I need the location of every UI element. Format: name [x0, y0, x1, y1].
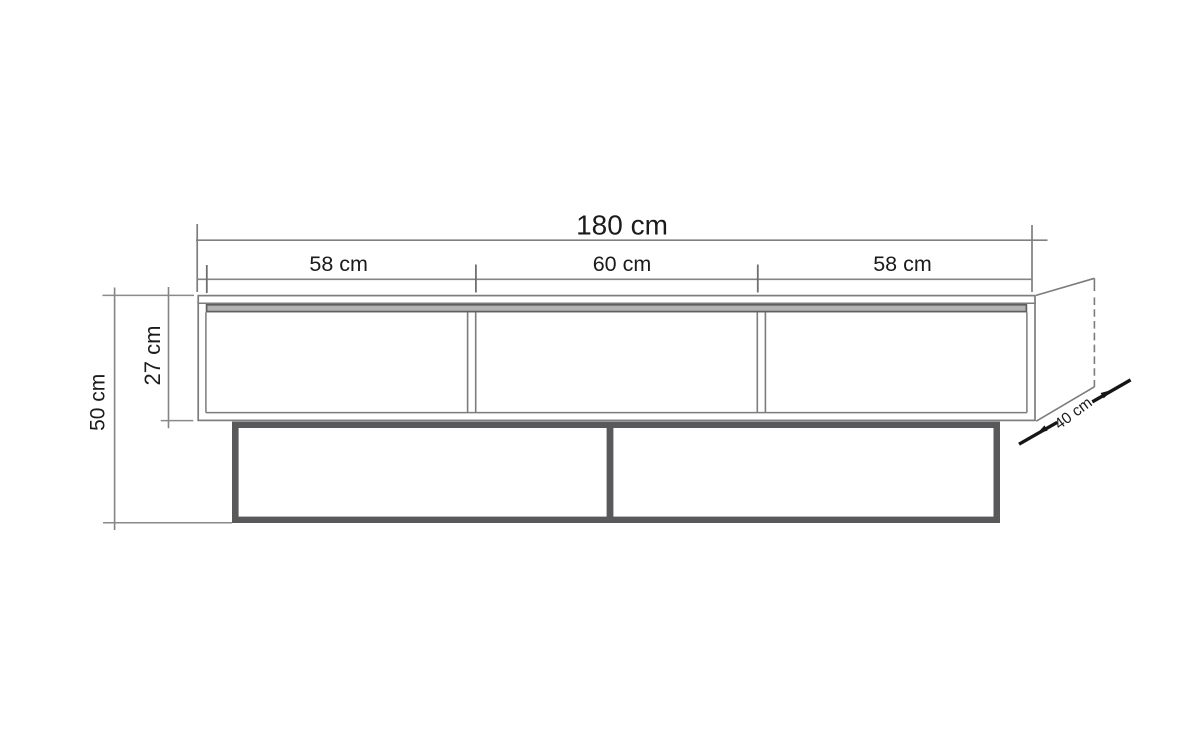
- svg-text:180 cm: 180 cm: [576, 209, 668, 240]
- svg-text:60 cm: 60 cm: [593, 252, 652, 276]
- svg-text:50 cm: 50 cm: [87, 374, 110, 431]
- svg-text:58 cm: 58 cm: [309, 252, 368, 276]
- svg-text:58 cm: 58 cm: [873, 252, 932, 276]
- svg-text:27 cm: 27 cm: [140, 326, 165, 386]
